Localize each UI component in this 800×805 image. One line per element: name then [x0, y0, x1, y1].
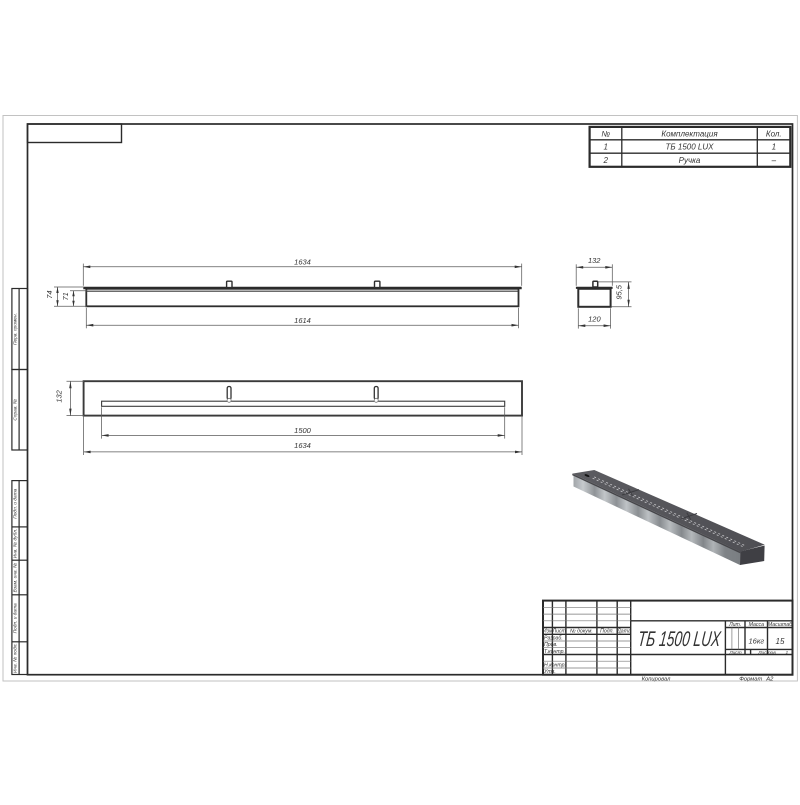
svg-text:Кол.: Кол.	[766, 129, 782, 138]
svg-text:71: 71	[61, 292, 70, 300]
svg-text:Инв. № дубл.: Инв. № дубл.	[13, 529, 19, 559]
svg-text:ТБ 1500 LUX: ТБ 1500 LUX	[637, 627, 723, 651]
svg-text:Копировал: Копировал	[642, 676, 672, 682]
svg-text:Ручка: Ручка	[679, 156, 701, 165]
svg-text:132: 132	[588, 256, 601, 265]
svg-text:Лист: Лист	[552, 629, 567, 635]
svg-text:1614: 1614	[294, 316, 311, 325]
svg-text:2: 2	[602, 156, 608, 165]
svg-text:Подп.: Подп.	[600, 629, 614, 635]
svg-text:Пров.: Пров.	[544, 642, 558, 648]
svg-text:Взам. инв. №: Взам. инв. №	[13, 563, 19, 593]
svg-text:ТБ 1500 LUX: ТБ 1500 LUX	[666, 143, 715, 152]
svg-text:Разраб.: Разраб.	[544, 635, 563, 641]
svg-text:1500: 1500	[294, 426, 312, 435]
svg-text:Утв.: Утв.	[544, 669, 556, 675]
svg-text:1: 1	[603, 143, 607, 152]
svg-text:Н.контр.: Н.контр.	[544, 662, 566, 668]
svg-text:№: №	[601, 129, 610, 138]
svg-text:–: –	[771, 156, 777, 165]
svg-text:А2: А2	[765, 676, 774, 682]
svg-text:1634: 1634	[294, 441, 311, 450]
svg-text:Перв. примен.: Перв. примен.	[13, 313, 19, 345]
svg-text:1634: 1634	[294, 258, 311, 267]
svg-text:1: 1	[785, 650, 788, 656]
svg-text:1: 1	[772, 143, 776, 152]
svg-text:95,5: 95,5	[615, 284, 624, 299]
svg-text:Масса: Масса	[749, 622, 764, 628]
svg-text:Т.контр.: Т.контр.	[544, 649, 565, 655]
svg-text:15: 15	[776, 637, 785, 646]
svg-text:Подп. и дата: Подп. и дата	[13, 603, 19, 633]
svg-text:Масштаб: Масштаб	[768, 622, 793, 628]
svg-text:132: 132	[55, 389, 64, 402]
svg-text:Подп. и дата: Подп. и дата	[13, 488, 19, 518]
svg-text:Лит.: Лит.	[728, 622, 741, 628]
svg-text:Изм: Изм	[543, 629, 553, 635]
svg-text:Инв. № подл.: Инв. № подл.	[13, 643, 19, 673]
svg-text:Формат: Формат	[739, 676, 762, 682]
svg-text:Листов: Листов	[757, 650, 776, 656]
svg-text:Комплектация: Комплектация	[661, 129, 718, 138]
svg-text:Лист: Лист	[728, 650, 741, 656]
svg-text:74: 74	[45, 290, 54, 298]
svg-text:Справ. №: Справ. №	[13, 399, 19, 421]
svg-text:16кг: 16кг	[749, 637, 765, 646]
svg-text:120: 120	[588, 314, 601, 323]
svg-text:Дата: Дата	[616, 629, 631, 635]
svg-text:№ докум.: № докум.	[570, 629, 593, 635]
